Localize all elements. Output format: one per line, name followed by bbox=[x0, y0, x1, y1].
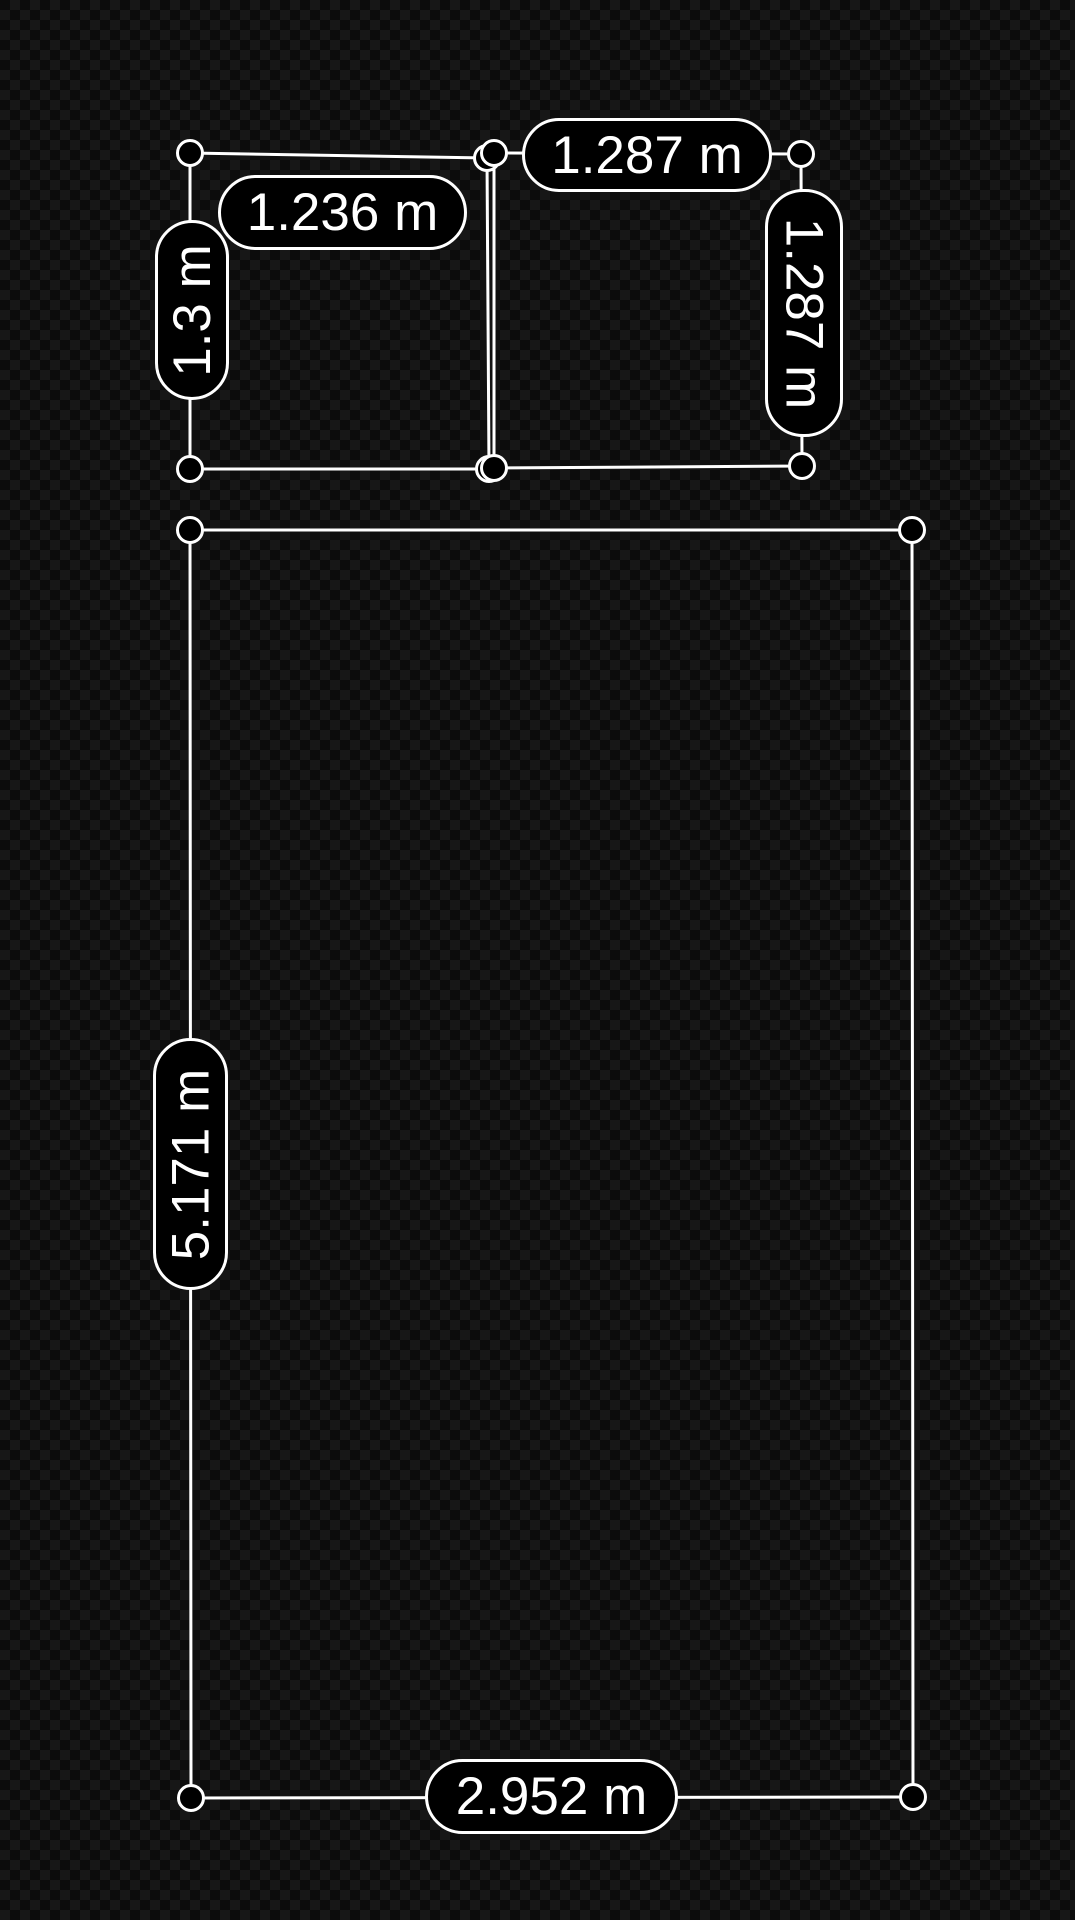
room-top-right-corner-handle[interactable] bbox=[789, 142, 814, 167]
measurement-label-5-171[interactable]: 5.171 m bbox=[153, 1038, 228, 1290]
room-top-right-corner-handle[interactable] bbox=[790, 454, 815, 479]
room-top-right-corner-handle[interactable] bbox=[482, 141, 507, 166]
measurement-label-2-952-text: 2.952 m bbox=[456, 1770, 648, 1823]
room-main-corner-handle[interactable] bbox=[178, 518, 203, 543]
measurement-label-1-236-text: 1.236 m bbox=[247, 186, 439, 239]
measurement-label-1-287-right[interactable]: 1.287 m bbox=[765, 189, 843, 437]
room-main-corner-handle[interactable] bbox=[901, 1785, 926, 1810]
room-main-corner-handle[interactable] bbox=[179, 1786, 204, 1811]
measurement-label-1-287-right-text: 1.287 m bbox=[778, 217, 831, 409]
measurement-label-1-3-text: 1.3 m bbox=[166, 244, 219, 377]
room-top-left-corner-handle[interactable] bbox=[178, 141, 203, 166]
room-top-left-corner-handle[interactable] bbox=[178, 457, 203, 482]
measurement-label-1-3[interactable]: 1.3 m bbox=[155, 220, 229, 400]
measurement-label-5-171-text: 5.171 m bbox=[164, 1068, 217, 1260]
room-top-right-corner-handle[interactable] bbox=[482, 456, 507, 481]
measurement-label-1-287-top[interactable]: 1.287 m bbox=[522, 118, 772, 192]
measurement-label-2-952[interactable]: 2.952 m bbox=[425, 1759, 678, 1834]
measurement-label-1-236[interactable]: 1.236 m bbox=[218, 175, 467, 250]
measure-canvas: 1.236 m1.3 m1.287 m1.287 m5.171 m2.952 m bbox=[0, 0, 1075, 1920]
room-main-outline bbox=[190, 530, 913, 1798]
measurement-label-1-287-top-text: 1.287 m bbox=[551, 129, 743, 182]
room-main-corner-handle[interactable] bbox=[900, 518, 925, 543]
room-top-right-outline bbox=[494, 153, 802, 468]
